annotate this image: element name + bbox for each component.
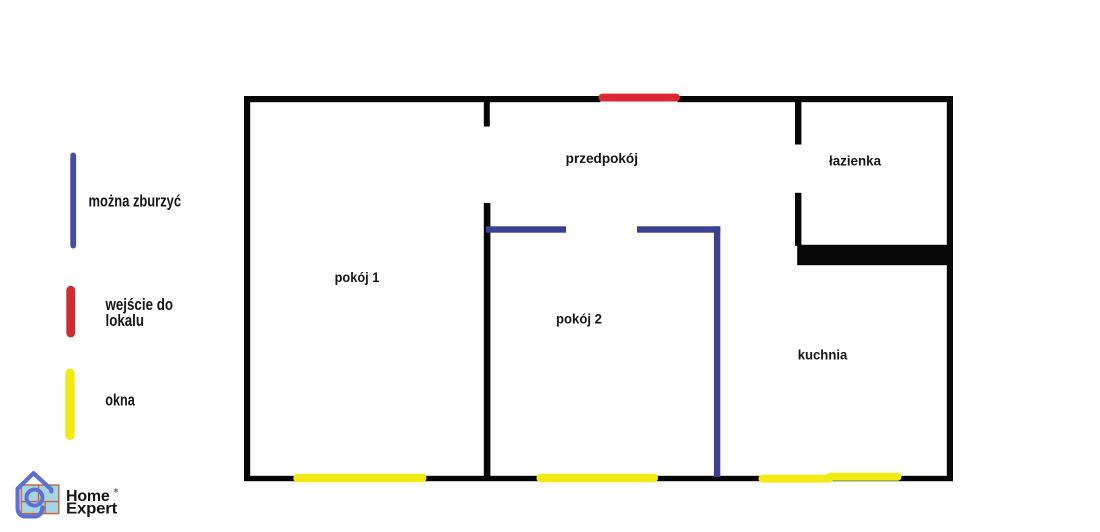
svg-text:®: ® <box>114 488 119 495</box>
svg-text:kuchnia: kuchnia <box>798 347 848 362</box>
svg-text:pokój 2: pokój 2 <box>556 311 602 326</box>
svg-text:można zburzyć: można zburzyć <box>89 192 182 210</box>
svg-text:łazienka: łazienka <box>829 154 881 169</box>
svg-text:okna: okna <box>105 391 135 409</box>
svg-text:pokój 1: pokój 1 <box>335 270 380 285</box>
svg-text:przedpokój: przedpokój <box>566 151 638 166</box>
svg-text:lokalu: lokalu <box>106 312 145 330</box>
svg-text:Expert: Expert <box>66 501 117 518</box>
